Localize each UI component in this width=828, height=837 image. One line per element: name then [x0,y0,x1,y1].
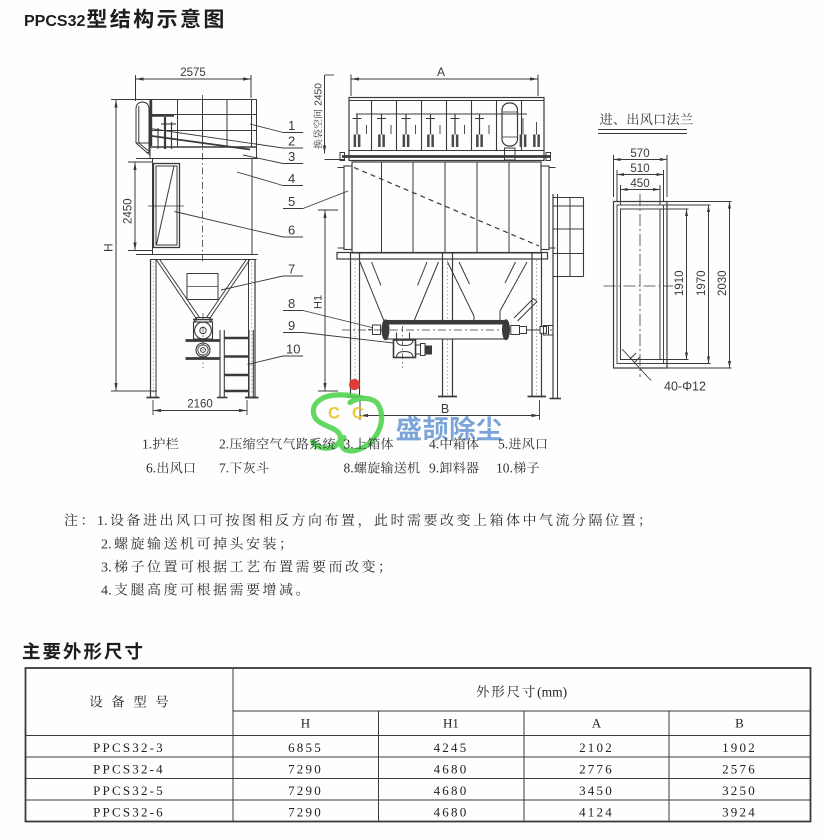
svg-text:7290: 7290 [288,805,323,820]
svg-text:1: 1 [288,118,295,133]
svg-text:2450: 2450 [314,83,325,109]
svg-text:7: 7 [288,262,295,277]
svg-text:2030: 2030 [717,270,729,296]
svg-text:3: 3 [288,149,295,164]
svg-text:1970: 1970 [696,270,708,296]
svg-text:8.: 8. [344,461,354,476]
svg-text:PPCS32-5: PPCS32-5 [93,783,165,798]
svg-text:(mm): (mm) [537,685,567,700]
svg-text:7290: 7290 [288,783,323,798]
svg-text:3250: 3250 [722,783,757,798]
svg-text:5: 5 [288,194,295,209]
svg-text:A: A [592,716,602,731]
svg-text:4680: 4680 [434,805,469,820]
svg-text:H: H [102,243,116,252]
svg-text:1.: 1. [97,514,108,529]
svg-text:570: 570 [630,148,649,160]
svg-text:7.: 7. [219,461,229,476]
svg-text:4: 4 [288,171,295,186]
svg-text:6.: 6. [146,461,156,476]
svg-text:H1: H1 [313,295,325,309]
svg-text:4680: 4680 [434,783,469,798]
svg-text:2776: 2776 [579,762,614,777]
svg-text:4680: 4680 [434,762,469,777]
svg-text:3.: 3. [101,561,112,576]
svg-text:2160: 2160 [187,399,213,411]
svg-text:3.: 3. [344,437,354,452]
svg-text:6855: 6855 [288,740,323,755]
svg-text:510: 510 [630,163,649,175]
svg-text:7290: 7290 [288,762,323,777]
svg-text:4.: 4. [101,584,112,599]
svg-text:10.: 10. [496,461,513,476]
svg-text:9.: 9. [429,461,439,476]
svg-text:2.: 2. [101,538,112,553]
svg-text:1.: 1. [142,437,152,452]
svg-text:PPCS32-3: PPCS32-3 [93,740,165,755]
svg-text:4245: 4245 [434,740,469,755]
svg-text:450: 450 [630,178,649,190]
svg-text:B: B [441,402,449,416]
svg-text:A: A [437,65,445,79]
svg-text:2102: 2102 [579,740,614,755]
svg-text:2575: 2575 [180,67,206,79]
svg-text:H1: H1 [443,716,459,731]
svg-text:9: 9 [288,318,295,333]
svg-text:1902: 1902 [722,740,757,755]
svg-text:2: 2 [288,134,295,149]
svg-text:6: 6 [288,223,295,238]
svg-text:C: C [352,405,364,423]
svg-text:PPCS32-4: PPCS32-4 [93,762,165,777]
svg-text:4.: 4. [429,437,439,452]
svg-text:40-Φ12: 40-Φ12 [664,380,706,394]
svg-text:C: C [328,405,340,423]
svg-text:10: 10 [286,342,300,357]
svg-text:5.: 5. [498,437,508,452]
svg-text:3450: 3450 [579,783,614,798]
svg-text:B: B [735,716,744,731]
svg-text:H: H [301,716,310,731]
svg-text:PPCS32: PPCS32 [24,13,85,30]
svg-text:2450: 2450 [123,198,135,224]
svg-text:3924: 3924 [722,805,757,820]
svg-text:8: 8 [288,296,295,311]
svg-text:2576: 2576 [722,762,757,777]
svg-text:4124: 4124 [579,805,614,820]
svg-text:PPCS32-6: PPCS32-6 [93,805,165,820]
svg-text:2.: 2. [219,437,229,452]
svg-text:1910: 1910 [674,270,686,296]
